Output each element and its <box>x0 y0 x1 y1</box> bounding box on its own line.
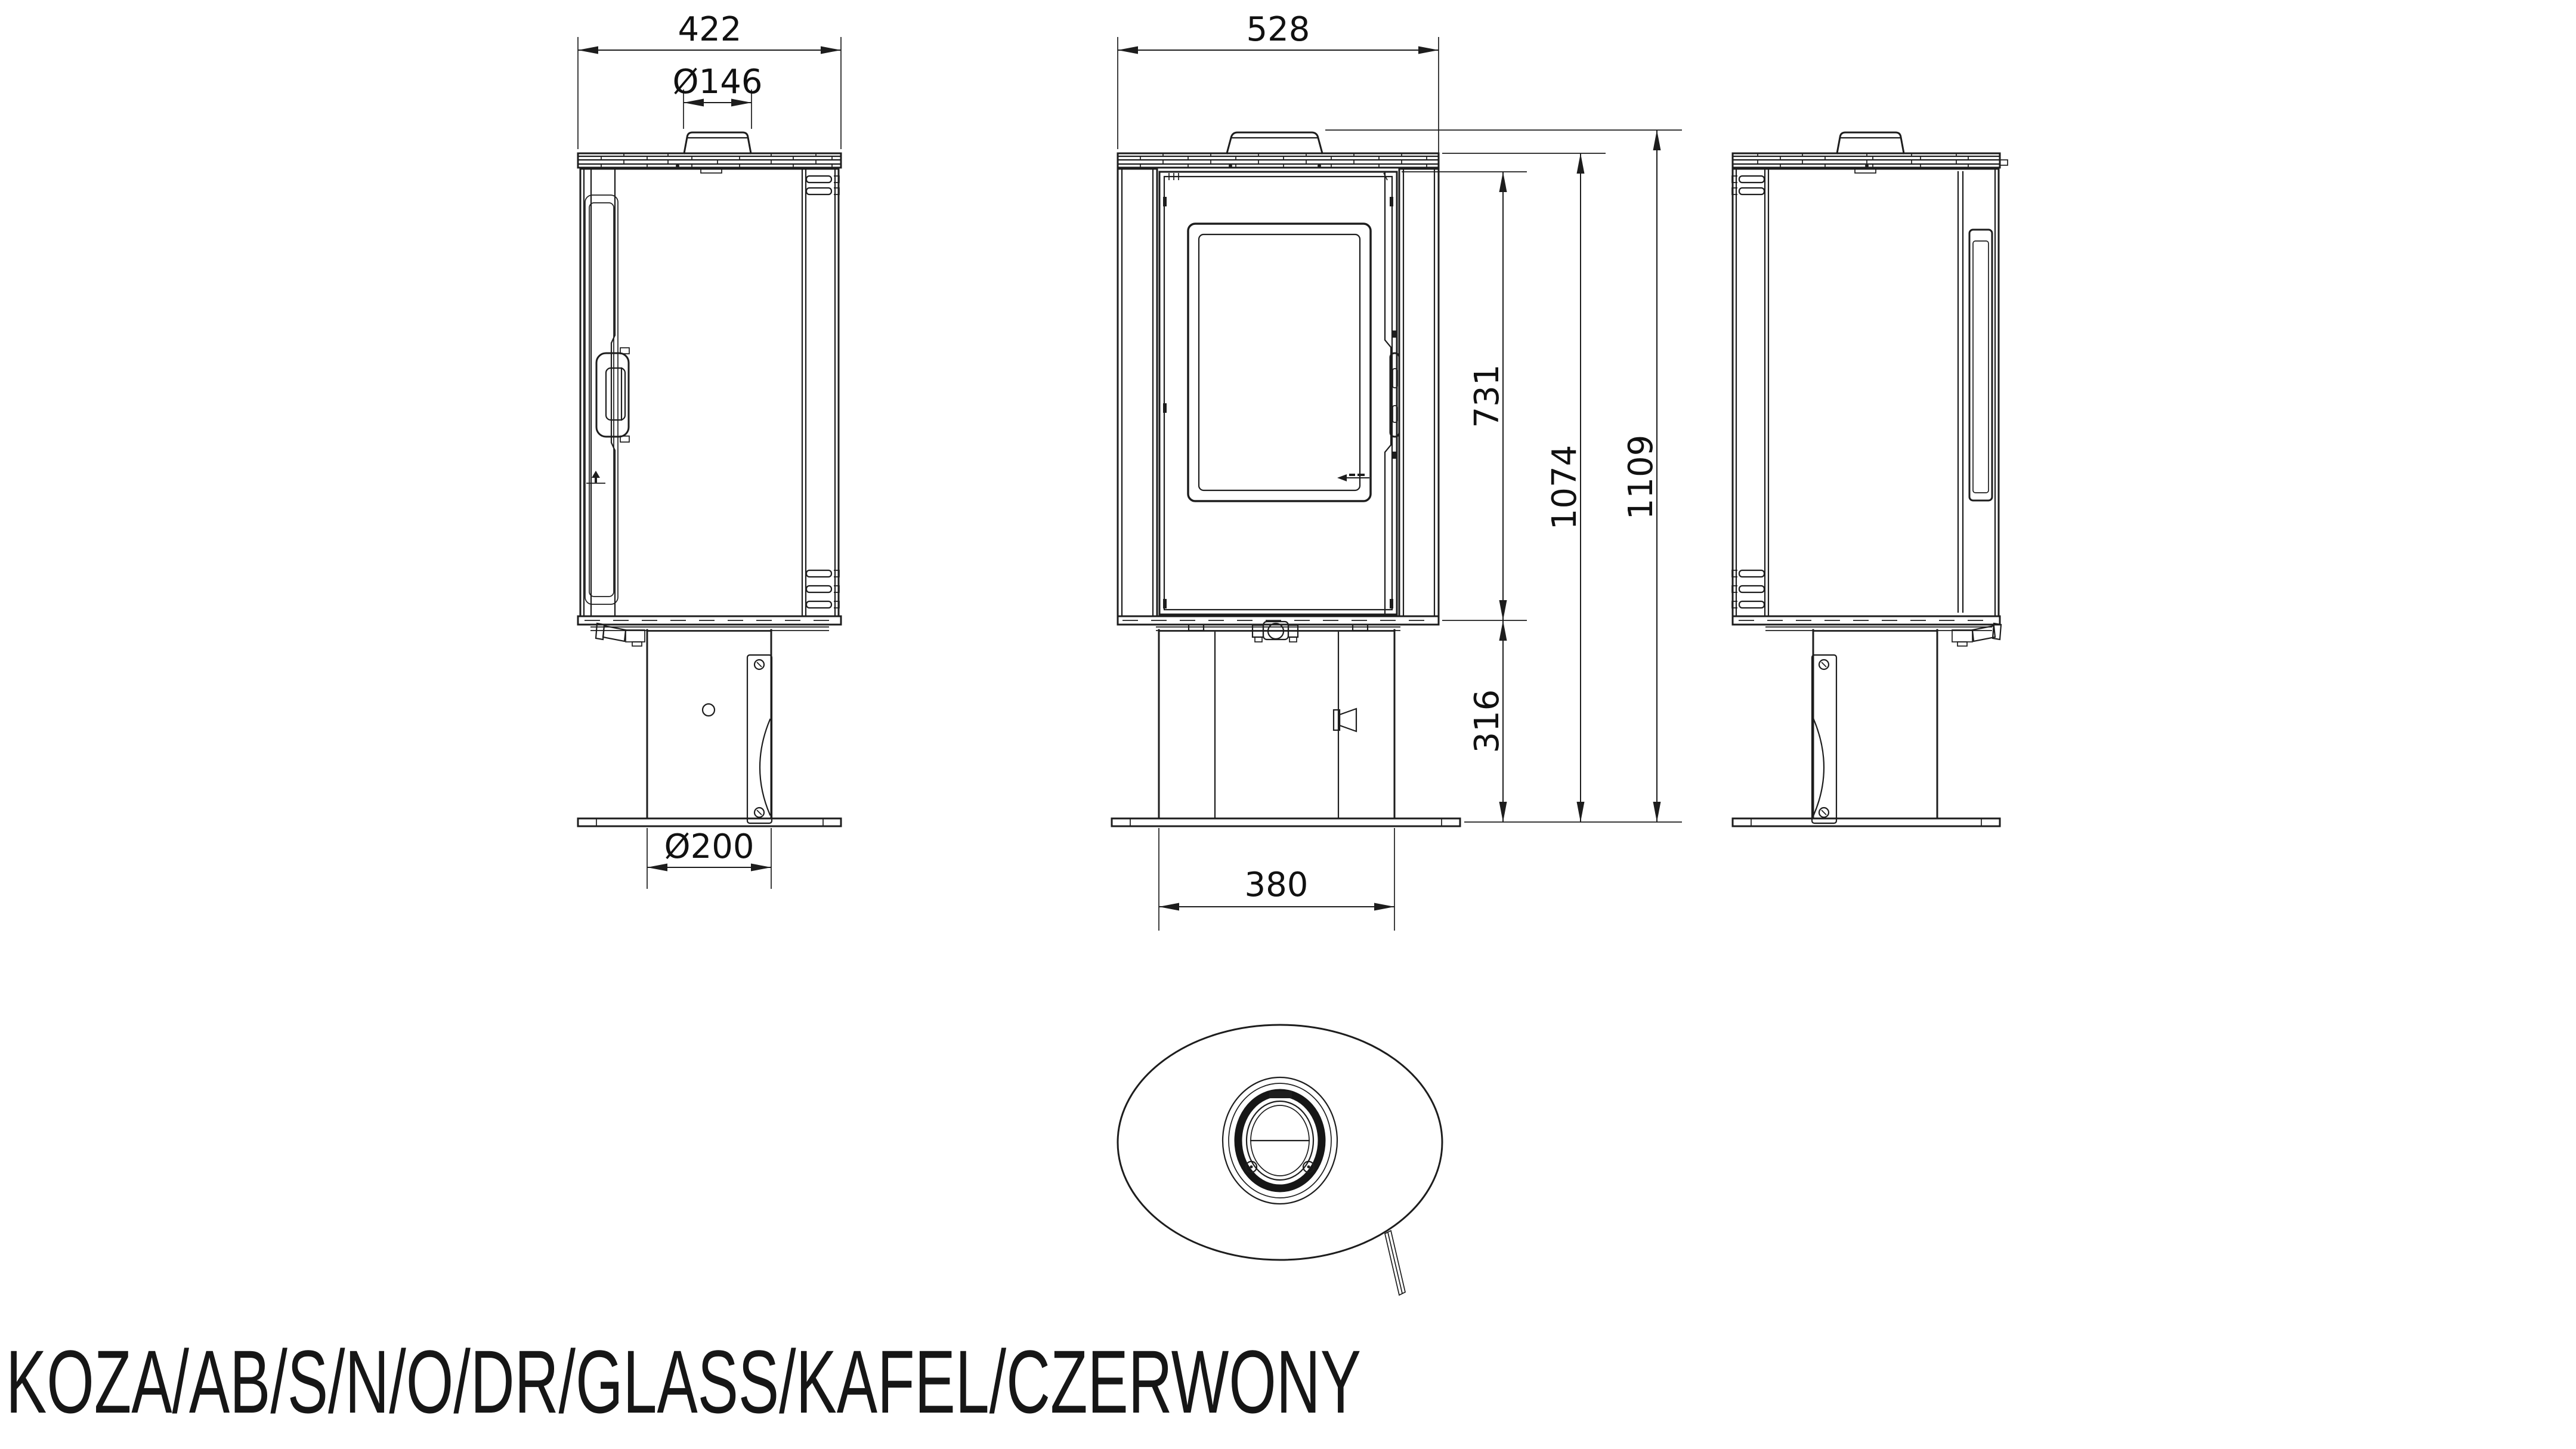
dim-label-base-200: Ø200 <box>664 827 754 866</box>
stove-body-right <box>1732 169 1999 616</box>
dimension-flue-146: Ø146 <box>673 63 763 129</box>
pedestal-front <box>1159 630 1394 818</box>
top-view <box>1118 1025 1442 1295</box>
direction-arrow-mark <box>592 471 600 483</box>
dimension-base-380: 380 <box>1159 828 1394 931</box>
top-plate-oval <box>1118 1025 1442 1260</box>
base-plate-front <box>1112 818 1460 826</box>
dimension-1074: 1074 <box>1442 153 1606 822</box>
dim-label-base-380: 380 <box>1245 866 1309 904</box>
base-plate-side <box>578 818 841 826</box>
product-name: KOZA/AB/S/N/O/DR/GLASS/KAFEL/CZERWONY <box>6 1331 1361 1432</box>
vent-strip-side <box>802 169 839 616</box>
side-panel-left-front <box>1118 169 1157 616</box>
side-glass-strip <box>1958 172 1992 612</box>
top-plate-side <box>578 153 841 168</box>
top-plate-right <box>1733 153 2008 168</box>
front-view <box>1112 132 1460 826</box>
glass-logo-arrow <box>1337 474 1369 481</box>
collar-clamp-tab <box>1269 1091 1292 1098</box>
pedestal-access-panel-right <box>1812 655 1836 823</box>
flue-outlet-top <box>1223 1077 1337 1204</box>
top-plate-front <box>1118 153 1439 168</box>
door-handle-side <box>596 348 629 442</box>
dimension-731: 731 <box>1402 172 1527 620</box>
stove-body-side <box>580 169 839 616</box>
side-view-right <box>1732 132 2008 826</box>
stove-technical-drawing: 422 Ø146 528 731 316 1074 <box>0 0 2576 1449</box>
stove-door <box>1159 172 1399 614</box>
side-view-left <box>578 132 841 826</box>
flue-collar-side <box>684 132 751 153</box>
dimension-316: 316 <box>1468 620 1507 822</box>
dim-label-528: 528 <box>1247 10 1310 49</box>
pedestal-right <box>1812 630 1937 823</box>
dim-label-1109: 1109 <box>1622 435 1660 520</box>
dim-label-731: 731 <box>1468 364 1507 428</box>
pedestal-access-panel <box>747 655 772 823</box>
side-panel-right-front <box>1399 169 1439 616</box>
flue-collar-right <box>1837 132 1904 153</box>
damper-lever <box>1385 1231 1405 1295</box>
vent-strip-right-view <box>1732 169 1768 616</box>
dimension-base-200: Ø200 <box>647 827 771 889</box>
dimension-528: 528 <box>1118 10 1439 614</box>
dim-label-422: 422 <box>678 10 742 49</box>
dim-label-316: 316 <box>1468 690 1507 753</box>
pedestal-side <box>647 630 772 823</box>
base-plate-right <box>1733 818 2000 826</box>
flue-collar-front <box>1227 132 1322 153</box>
bottom-plate-front <box>1118 616 1439 642</box>
dim-label-flue: Ø146 <box>673 63 763 101</box>
door-glass-window <box>1188 224 1371 501</box>
ash-door-key <box>1334 709 1356 731</box>
dim-label-1074: 1074 <box>1545 445 1584 530</box>
